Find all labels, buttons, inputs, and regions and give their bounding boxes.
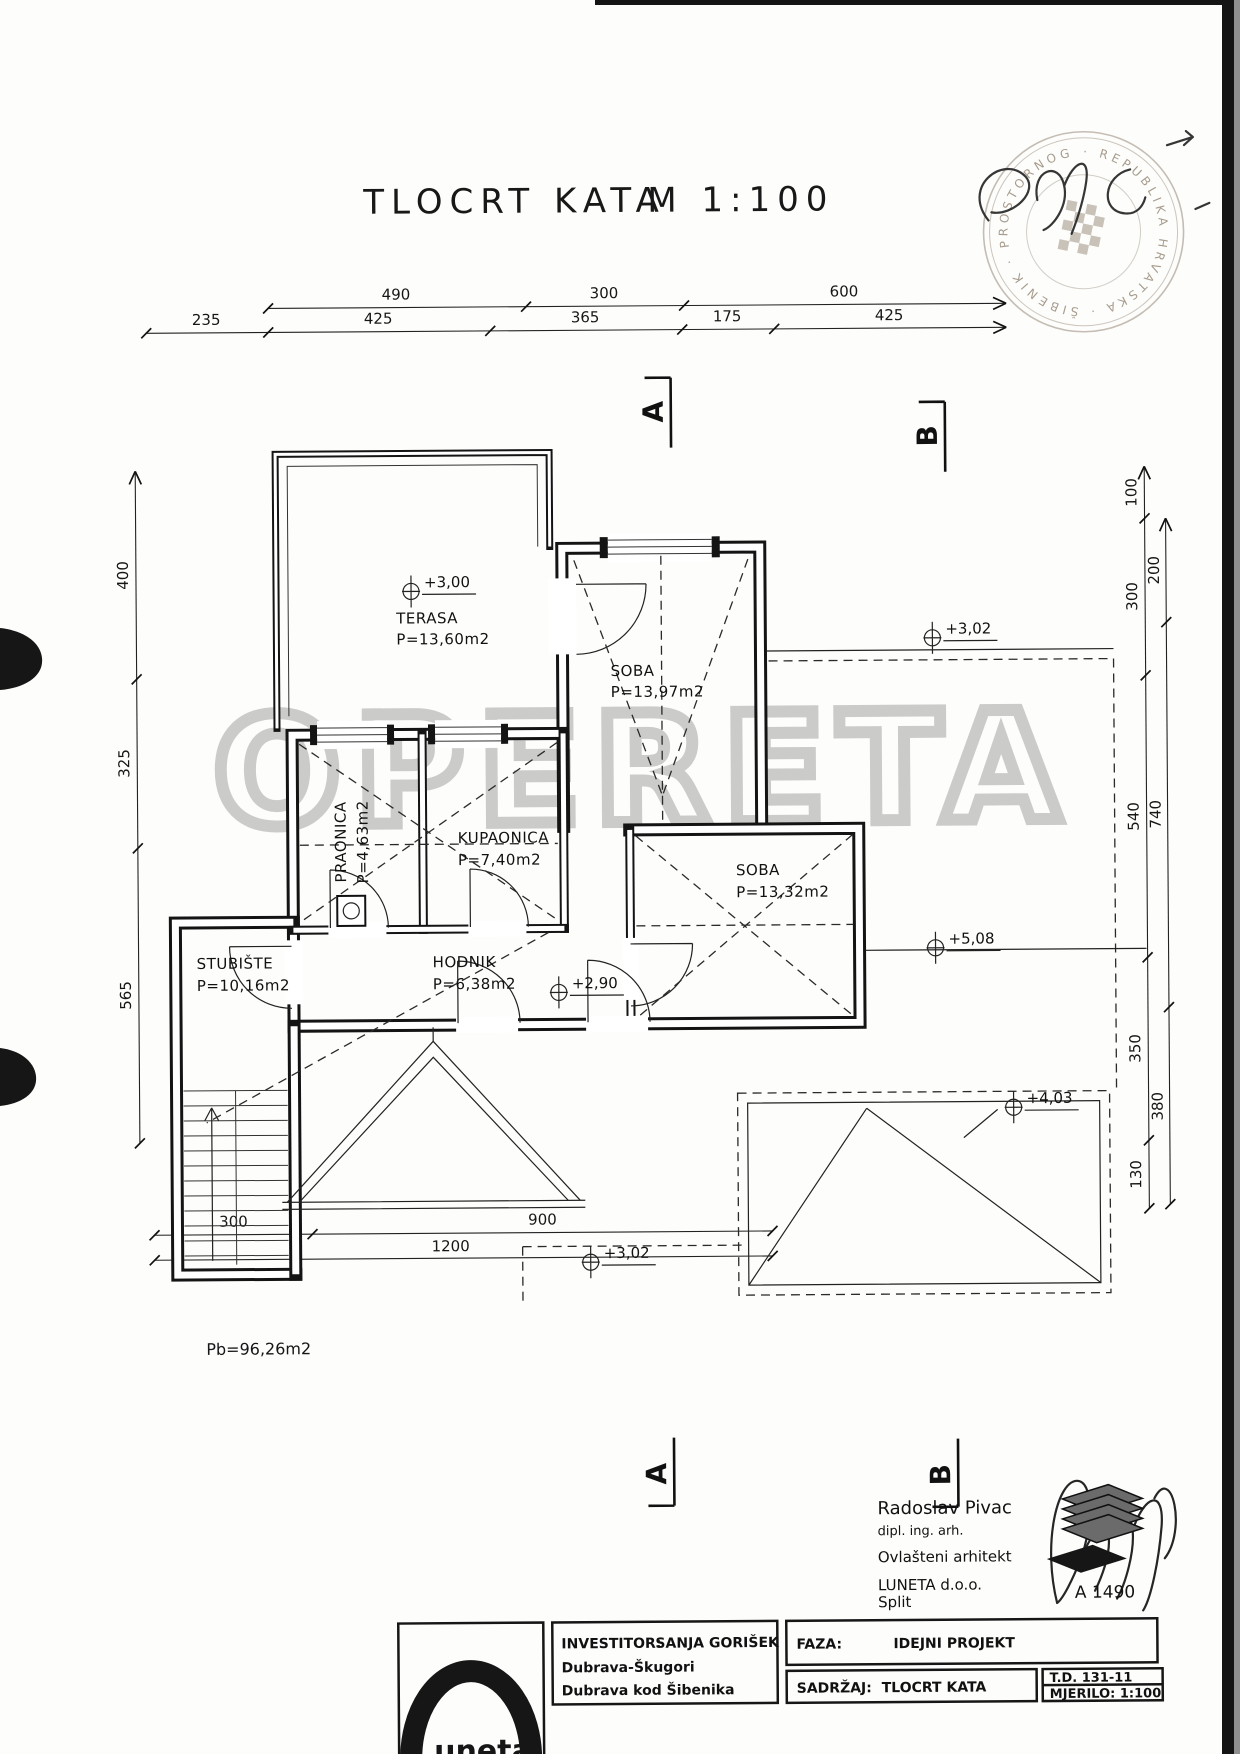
scale-value: MJERILO: 1:100 bbox=[1050, 1686, 1162, 1702]
floor-area-note: Pb=96,26m2 bbox=[206, 1339, 311, 1359]
bottom-dimension-row-1: 300 900 bbox=[149, 1209, 777, 1240]
dim-label: 600 bbox=[830, 282, 859, 300]
dim-label: 300 bbox=[219, 1213, 248, 1231]
plan-code: A 1490 bbox=[1075, 1582, 1135, 1602]
page-title: TLOCRT KATA bbox=[362, 181, 666, 223]
architect-block: Radoslav Pivac dipl. ing. arh. Ovlašteni… bbox=[877, 1480, 1176, 1612]
dim-label: 350 bbox=[1126, 1034, 1144, 1063]
svg-text:+3,02: +3,02 bbox=[945, 619, 991, 637]
section-marker-a-top: A bbox=[637, 378, 671, 448]
dim-label: 740 bbox=[1147, 800, 1165, 829]
dim-label: 200 bbox=[1145, 556, 1163, 585]
investor-label: INVESTITOR: bbox=[561, 1636, 661, 1653]
room-name: SOBA bbox=[736, 861, 780, 879]
bottom-dimension-row-2: 1200 bbox=[150, 1235, 778, 1265]
dim-label: 130 bbox=[1127, 1160, 1145, 1189]
right-dimension-outer: 200 740 380 bbox=[1145, 518, 1177, 1209]
scan-artifacts bbox=[0, 0, 1240, 1754]
room-name: STUBIŠTE bbox=[197, 953, 274, 973]
svg-text:B: B bbox=[911, 425, 944, 447]
content-label: SADRŽAJ: bbox=[797, 1679, 872, 1697]
investor-value: SANJA GORIŠEK bbox=[655, 1633, 780, 1652]
drawing-title: TLOCRT KATA M 1:100 bbox=[362, 179, 834, 222]
left-dimension-column: 400 325 565 bbox=[113, 471, 146, 1148]
dim-label: 900 bbox=[528, 1210, 557, 1228]
svg-text:A: A bbox=[637, 400, 670, 422]
elevation-marker: +3,02 bbox=[923, 619, 997, 654]
dim-label: 325 bbox=[115, 749, 133, 778]
td-number: T.D. 131-11 bbox=[1050, 1670, 1133, 1686]
dim-label: 490 bbox=[382, 285, 411, 303]
dim-label: 365 bbox=[571, 308, 600, 326]
section-marker-a-bottom: A bbox=[640, 1438, 674, 1506]
dim-label: 300 bbox=[590, 284, 619, 302]
dim-label: 175 bbox=[713, 307, 742, 325]
room-area: P=13,32m2 bbox=[736, 883, 829, 902]
dim-label: 300 bbox=[1123, 582, 1141, 611]
elevation-marker: +3,00 bbox=[402, 573, 476, 608]
room-area: P=4,63m2 bbox=[354, 800, 373, 883]
architect-city: Split bbox=[878, 1593, 912, 1611]
stair-direction-arrow bbox=[205, 1108, 220, 1261]
svg-text:B: B bbox=[924, 1464, 957, 1486]
room-name: KUPAONICA bbox=[458, 828, 550, 847]
dim-label: 425 bbox=[364, 310, 393, 328]
phase-label: FAZA: bbox=[796, 1636, 842, 1652]
dim-label: 1200 bbox=[431, 1237, 469, 1255]
scan-top-edge bbox=[595, 0, 1240, 5]
architect-company: LUNETA d.o.o. bbox=[878, 1575, 982, 1594]
svg-text:+2,90: +2,90 bbox=[572, 974, 618, 992]
room-name: TERASA bbox=[395, 609, 458, 627]
room-area: P=6,38m2 bbox=[433, 975, 516, 994]
svg-text:+5,08: +5,08 bbox=[948, 929, 994, 947]
luneta-logo-text: uneta bbox=[434, 1734, 532, 1754]
room-area: P=10,16m2 bbox=[197, 976, 290, 995]
top-dimension-row-2: 235 425 365 175 425 bbox=[141, 305, 1006, 339]
dim-label: 425 bbox=[875, 306, 904, 324]
investor-address-1: Dubrava-Škugori bbox=[562, 1657, 695, 1676]
elevation-marker: +2,90 bbox=[550, 974, 624, 1009]
elevation-marker: +3,02 bbox=[582, 1244, 656, 1279]
architect-name: Radoslav Pivac bbox=[877, 1497, 1012, 1519]
title-block: uneta INVESTITOR: SANJA GORIŠEK Dubrava-… bbox=[398, 1618, 1163, 1754]
section-marker-b-top: B bbox=[911, 402, 945, 472]
dim-label: 100 bbox=[1122, 478, 1140, 507]
dim-label: 400 bbox=[114, 561, 132, 590]
boiler-fixture bbox=[337, 896, 365, 926]
room-area: P=7,40m2 bbox=[458, 851, 541, 870]
svg-text:+3,00: +3,00 bbox=[424, 573, 470, 591]
dim-label: 565 bbox=[117, 981, 135, 1010]
scanned-floor-plan-page: OPERETA TLOCRT KATA M 1:100 · REPUBLIKA … bbox=[0, 0, 1240, 1754]
scan-right-edge-gray bbox=[1234, 0, 1240, 1754]
floor-plan-drawing: OPERETA TLOCRT KATA M 1:100 · REPUBLIKA … bbox=[0, 0, 1240, 1754]
architect-license: Ovlašteni arhitekt bbox=[878, 1547, 1012, 1566]
room-name: HODNIK bbox=[433, 953, 497, 971]
staircase bbox=[184, 1090, 289, 1265]
room-area: P=13,97m2 bbox=[611, 682, 704, 701]
room-area: P=13,60m2 bbox=[396, 630, 489, 649]
investor-address-2: Dubrava kod Šibenika bbox=[562, 1680, 735, 1699]
svg-text:A: A bbox=[640, 1462, 673, 1484]
official-stamp: · REPUBLIKA HRVATSKA · ŠIBENIK · PROSTOR… bbox=[979, 131, 1210, 333]
svg-text:+3,02: +3,02 bbox=[604, 1244, 650, 1262]
scan-right-edge-dark bbox=[1222, 0, 1234, 1754]
room-name: SOBA bbox=[611, 662, 655, 680]
svg-text:+4,03: +4,03 bbox=[1027, 1089, 1073, 1107]
phase-value: IDEJNI PROJEKT bbox=[893, 1635, 1015, 1652]
architect-title: dipl. ing. arh. bbox=[878, 1524, 964, 1540]
content-value: TLOCRT KATA bbox=[882, 1679, 987, 1696]
hole-punch-mark-top bbox=[0, 628, 42, 690]
secondary-hip-roof bbox=[738, 1091, 1111, 1296]
room-name: PRAONICA bbox=[332, 801, 351, 882]
elevation-marker: +4,03 bbox=[1005, 1089, 1079, 1124]
dim-label: 540 bbox=[1125, 802, 1143, 831]
elevation-marker: +5,08 bbox=[926, 929, 1000, 964]
stamp-coat-of-arms bbox=[1058, 200, 1107, 257]
dim-label: 380 bbox=[1149, 1092, 1167, 1121]
page-title-scale: M 1:100 bbox=[647, 179, 834, 220]
main-hip-roof bbox=[281, 1026, 585, 1209]
dim-label: 235 bbox=[192, 311, 221, 329]
hole-punch-mark-bottom bbox=[0, 1048, 36, 1106]
section-marker-b-bottom: B bbox=[924, 1439, 958, 1507]
